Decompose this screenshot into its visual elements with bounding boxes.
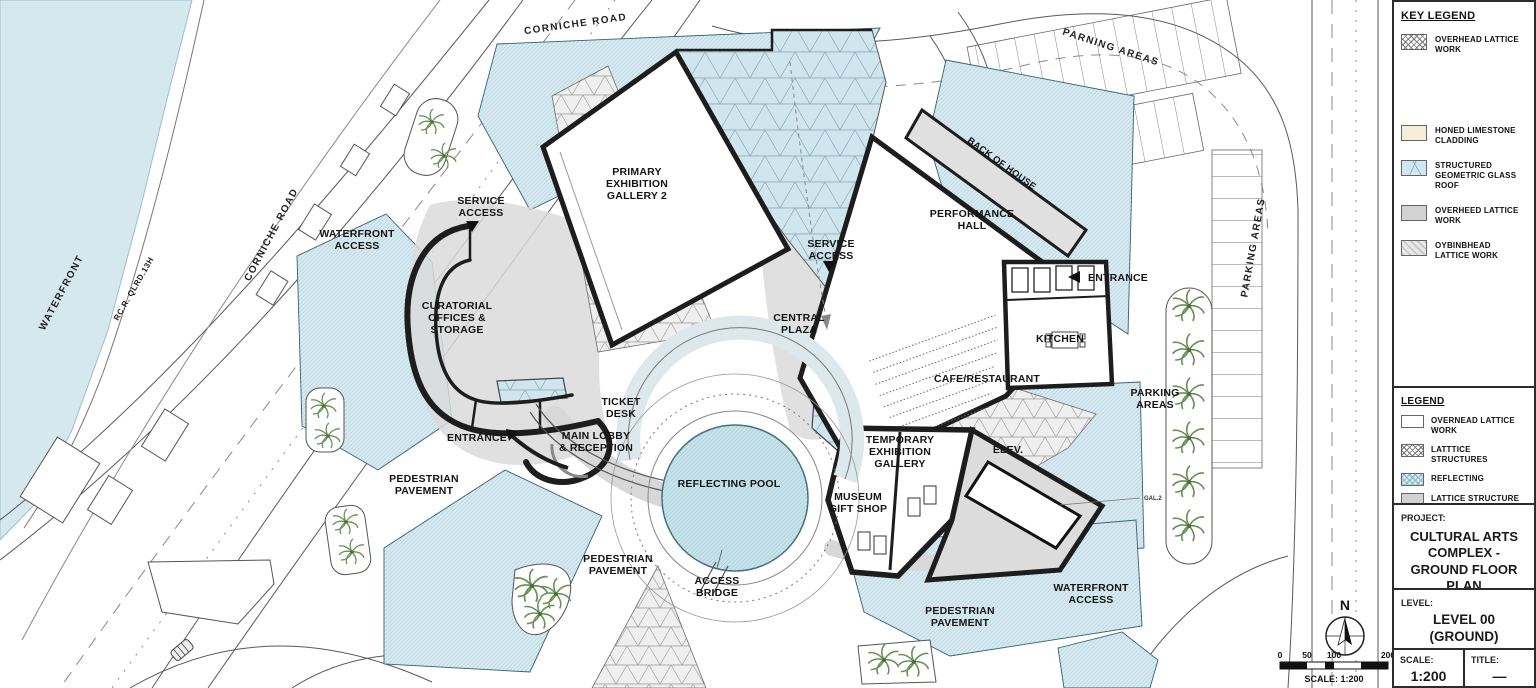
key-legend-item: OVERHEED LATTICE WORK: [1401, 205, 1527, 227]
label-entrance-east: ENTRANCE: [1088, 272, 1148, 284]
key-legend-item-label: STRUCTURED GEOMETRIC GLASS ROOF: [1435, 160, 1527, 192]
parking-stalls-east: [1212, 150, 1262, 468]
label-service-access-center: SERVICEACCESS: [807, 238, 854, 262]
project-title: CULTURAL ARTS COMPLEX - GROUND FLOOR PLA…: [1401, 529, 1527, 594]
project-box: PROJECT: CULTURAL ARTS COMPLEX - GROUND …: [1392, 503, 1536, 590]
label-reflecting-pool: REFLECTING POOL: [678, 478, 781, 490]
glass-roof-swatch: [1401, 160, 1427, 176]
reflecting-pool-water: [662, 425, 808, 571]
label-parking-areas-east: PARKINGAREAS: [1130, 387, 1179, 411]
key-legend-spacer: [1401, 69, 1527, 125]
scale-tick-50: 50: [1302, 650, 1312, 660]
scale-label: SCALE:: [1400, 655, 1457, 665]
legend-box: LEGEND OVERNEAD LATTICE WORK LATTTICE ST…: [1392, 386, 1536, 505]
white-swatch: [1401, 415, 1424, 428]
key-legend-item-label: OYBINBHEAD LATTICE WORK: [1435, 240, 1527, 262]
title-value: —: [1471, 668, 1528, 684]
key-legend-item-label: OVERHEAD LATTICE WORK: [1435, 34, 1527, 56]
road-island: [148, 560, 274, 624]
reflecting-swatch: [1401, 473, 1424, 486]
label-gal-tag: GAL.2: [1144, 496, 1162, 502]
label-museum-gift-shop: MUSEUMGIFT SHOP: [829, 491, 887, 515]
scale-bar: 0 50 100 200 SCALE: 1:200: [1278, 650, 1392, 684]
title-cell: TITLE: —: [1463, 650, 1534, 686]
legend-item-label: OVERNEAD LATTICE WORK: [1431, 415, 1527, 437]
label-access-bridge: ACCESSBRIDGE: [695, 575, 740, 599]
title-block-panel: KEY LEGEND OVERHEAD LATTICE WORK HONED L…: [1392, 0, 1536, 688]
label-service-access-nw: SERVICEACCESS: [457, 195, 504, 219]
level-box: LEVEL: LEVEL 00 (GROUND): [1392, 588, 1536, 650]
key-legend-item-label: OVERHEED LATTICE WORK: [1435, 205, 1527, 227]
label-primary-gallery: PRIMARYEXHIBITIONGALLERY 2: [606, 166, 668, 202]
legend-item: LATTTICE STRUCTURES: [1401, 444, 1527, 466]
legend-item: OVERNEAD LATTICE WORK: [1401, 415, 1527, 437]
scale-tick-100: 100: [1327, 650, 1341, 660]
label-elevator: ELEV.: [993, 444, 1023, 456]
scale-caption: SCALE: 1:200: [1304, 674, 1363, 684]
level-value: LEVEL 00 (GROUND): [1401, 612, 1527, 646]
label-pedestrian-pavement-se: PEDESTRIANPAVEMENT: [925, 605, 995, 629]
overhead-lattice-swatch: [1401, 34, 1427, 50]
label-pedestrian-pavement-south: PEDESTRIANPAVEMENT: [583, 553, 653, 577]
label-ticket-desk: TICKETDESK: [601, 396, 641, 420]
label-corniche-road-top: CORNICHE ROAD: [524, 12, 628, 37]
floor-plan-drawing: CORNICHE ROAD PARNING AREAS WATERFRONT R…: [0, 0, 1392, 688]
car: [170, 638, 195, 661]
legend-title: LEGEND: [1401, 396, 1527, 407]
lattice-structures-swatch: [1401, 444, 1424, 457]
waterfront-water: [0, 0, 204, 540]
label-pedestrian-pavement-west: PEDESTRIANPAVEMENT: [389, 473, 459, 497]
key-legend-item: HONED LIMESTONE CLADDING: [1401, 125, 1527, 147]
scale-tick-0: 0: [1278, 650, 1283, 660]
scale-value: 1:200: [1400, 668, 1457, 684]
label-curatorial-offices: CURATORIALOFFICES &STORAGE: [422, 300, 493, 336]
limestone-swatch: [1401, 125, 1427, 141]
key-legend-item: OYBINBHEAD LATTICE WORK: [1401, 240, 1527, 262]
scale-title-box: SCALE: 1:200 TITLE: —: [1392, 648, 1536, 688]
key-legend-title: KEY LEGEND: [1401, 10, 1527, 22]
level-label: LEVEL:: [1401, 598, 1527, 608]
label-main-lobby: MAIN LOBBY& RECEPTION: [559, 430, 633, 454]
legend-item-label: REFLECTING: [1431, 473, 1484, 484]
key-legend-item: STRUCTURED GEOMETRIC GLASS ROOF: [1401, 160, 1527, 192]
north-letter: N: [1340, 597, 1350, 613]
key-legend-box: KEY LEGEND OVERHEAD LATTICE WORK HONED L…: [1392, 0, 1536, 388]
scale-tick-200: 200: [1381, 650, 1392, 660]
site-plan-sheet: CORNICHE ROAD PARNING AREAS WATERFRONT R…: [0, 0, 1536, 688]
label-temporary-gallery: TEMPORARYEXHIBITIONGALLERY: [866, 434, 935, 470]
project-label: PROJECT:: [1401, 513, 1527, 523]
key-legend-item: OVERHEAD LATTICE WORK: [1401, 34, 1527, 56]
key-legend-item-label: HONED LIMESTONE CLADDING: [1435, 125, 1527, 147]
diag-lattice-swatch: [1401, 240, 1427, 256]
legend-item-label: LATTTICE STRUCTURES: [1431, 444, 1527, 466]
label-entrance-west: ENTRANCE: [447, 432, 507, 444]
scale-cell: SCALE: 1:200: [1394, 650, 1463, 686]
legend-item: REFLECTING: [1401, 473, 1527, 486]
gray-lattice-swatch: [1401, 205, 1427, 221]
title-label: TITLE:: [1471, 655, 1528, 665]
label-cafe-restaurant: CAFE/RESTAURANT: [934, 373, 1040, 385]
label-kitchen: KITCHEN: [1036, 333, 1084, 345]
